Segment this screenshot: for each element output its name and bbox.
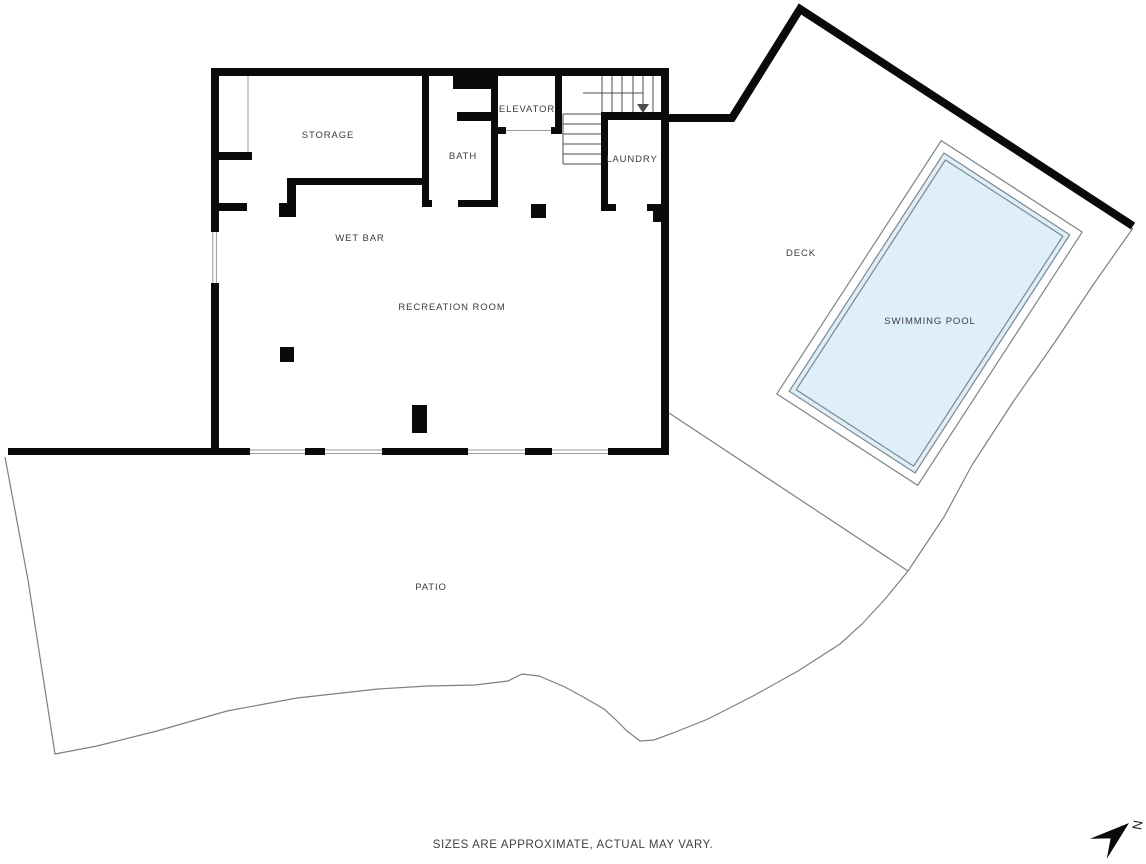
wall-wet-bar-door-stub xyxy=(219,203,247,211)
wall-laundry-top xyxy=(601,112,669,120)
window xyxy=(468,450,525,454)
wall-laundry-corner-block xyxy=(653,204,669,222)
label-bath: BATH xyxy=(449,151,477,162)
wall-bath-bottom-segment xyxy=(422,200,432,207)
label-laundry: LAUNDRY xyxy=(606,154,658,165)
label-patio: PATIO xyxy=(415,582,447,593)
post xyxy=(412,405,427,433)
wall-wet-bar xyxy=(292,178,429,185)
label-wet-bar: WET BAR xyxy=(335,233,384,244)
wall-bottom-segment xyxy=(382,448,468,455)
label-storage: STORAGE xyxy=(302,130,355,141)
windows xyxy=(213,76,608,454)
label-recreation-room: RECREATION ROOM xyxy=(398,302,505,313)
wall-storage-closet-stub xyxy=(219,152,252,160)
wall-bottom-segment xyxy=(8,448,250,455)
building-walls xyxy=(8,68,732,455)
wall-elevator-bottom-segment xyxy=(498,127,506,134)
wall-left-upper xyxy=(211,68,219,232)
wall-bottom-segment xyxy=(608,448,669,455)
deck-wall-outline xyxy=(665,9,1133,226)
stair-direction-line xyxy=(583,93,643,105)
wall-wet-bar-leg xyxy=(287,178,296,204)
stair-direction-arrowhead xyxy=(637,104,649,113)
wall-left-lower xyxy=(211,283,219,455)
wall-bath-bottom-segment xyxy=(458,200,498,207)
wall-bath-top-block xyxy=(453,76,495,89)
window-left-wall xyxy=(213,232,217,283)
wall-right xyxy=(661,68,669,455)
label-elevator: ELEVATOR xyxy=(499,104,555,115)
floor-plan-canvas: STORAGE ELEVATOR BATH LAUNDRY WET BAR RE… xyxy=(0,0,1146,864)
wall-laundry-bottom-segment xyxy=(601,204,616,211)
label-deck: DECK xyxy=(786,248,816,259)
window xyxy=(325,450,382,454)
compass: N xyxy=(1090,819,1146,859)
wall-elevator-right xyxy=(555,76,562,134)
pool-basin xyxy=(789,153,1069,473)
wall-bottom-segment xyxy=(525,448,552,455)
north-arrow-icon xyxy=(1090,823,1129,859)
wall-bath-niche-stub xyxy=(457,112,493,121)
swimming-pool xyxy=(777,141,1082,486)
disclaimer-text: SIZES ARE APPROXIMATE, ACTUAL MAY VARY. xyxy=(433,839,714,851)
post xyxy=(531,204,546,218)
post xyxy=(280,347,294,362)
label-swimming-pool: SWIMMING POOL xyxy=(884,316,975,327)
wall-wet-bar-leg-cap xyxy=(279,203,296,217)
wall-bottom-segment xyxy=(305,448,325,455)
stair-treads-lower xyxy=(563,114,601,164)
wall-top xyxy=(211,68,669,76)
wall-bath-right xyxy=(491,76,498,207)
window xyxy=(552,450,608,454)
floor-plan: STORAGE ELEVATOR BATH LAUNDRY WET BAR RE… xyxy=(0,0,1146,864)
window xyxy=(250,450,305,454)
north-label: N xyxy=(1129,819,1145,831)
wall-storage-bath-divider xyxy=(422,76,429,207)
